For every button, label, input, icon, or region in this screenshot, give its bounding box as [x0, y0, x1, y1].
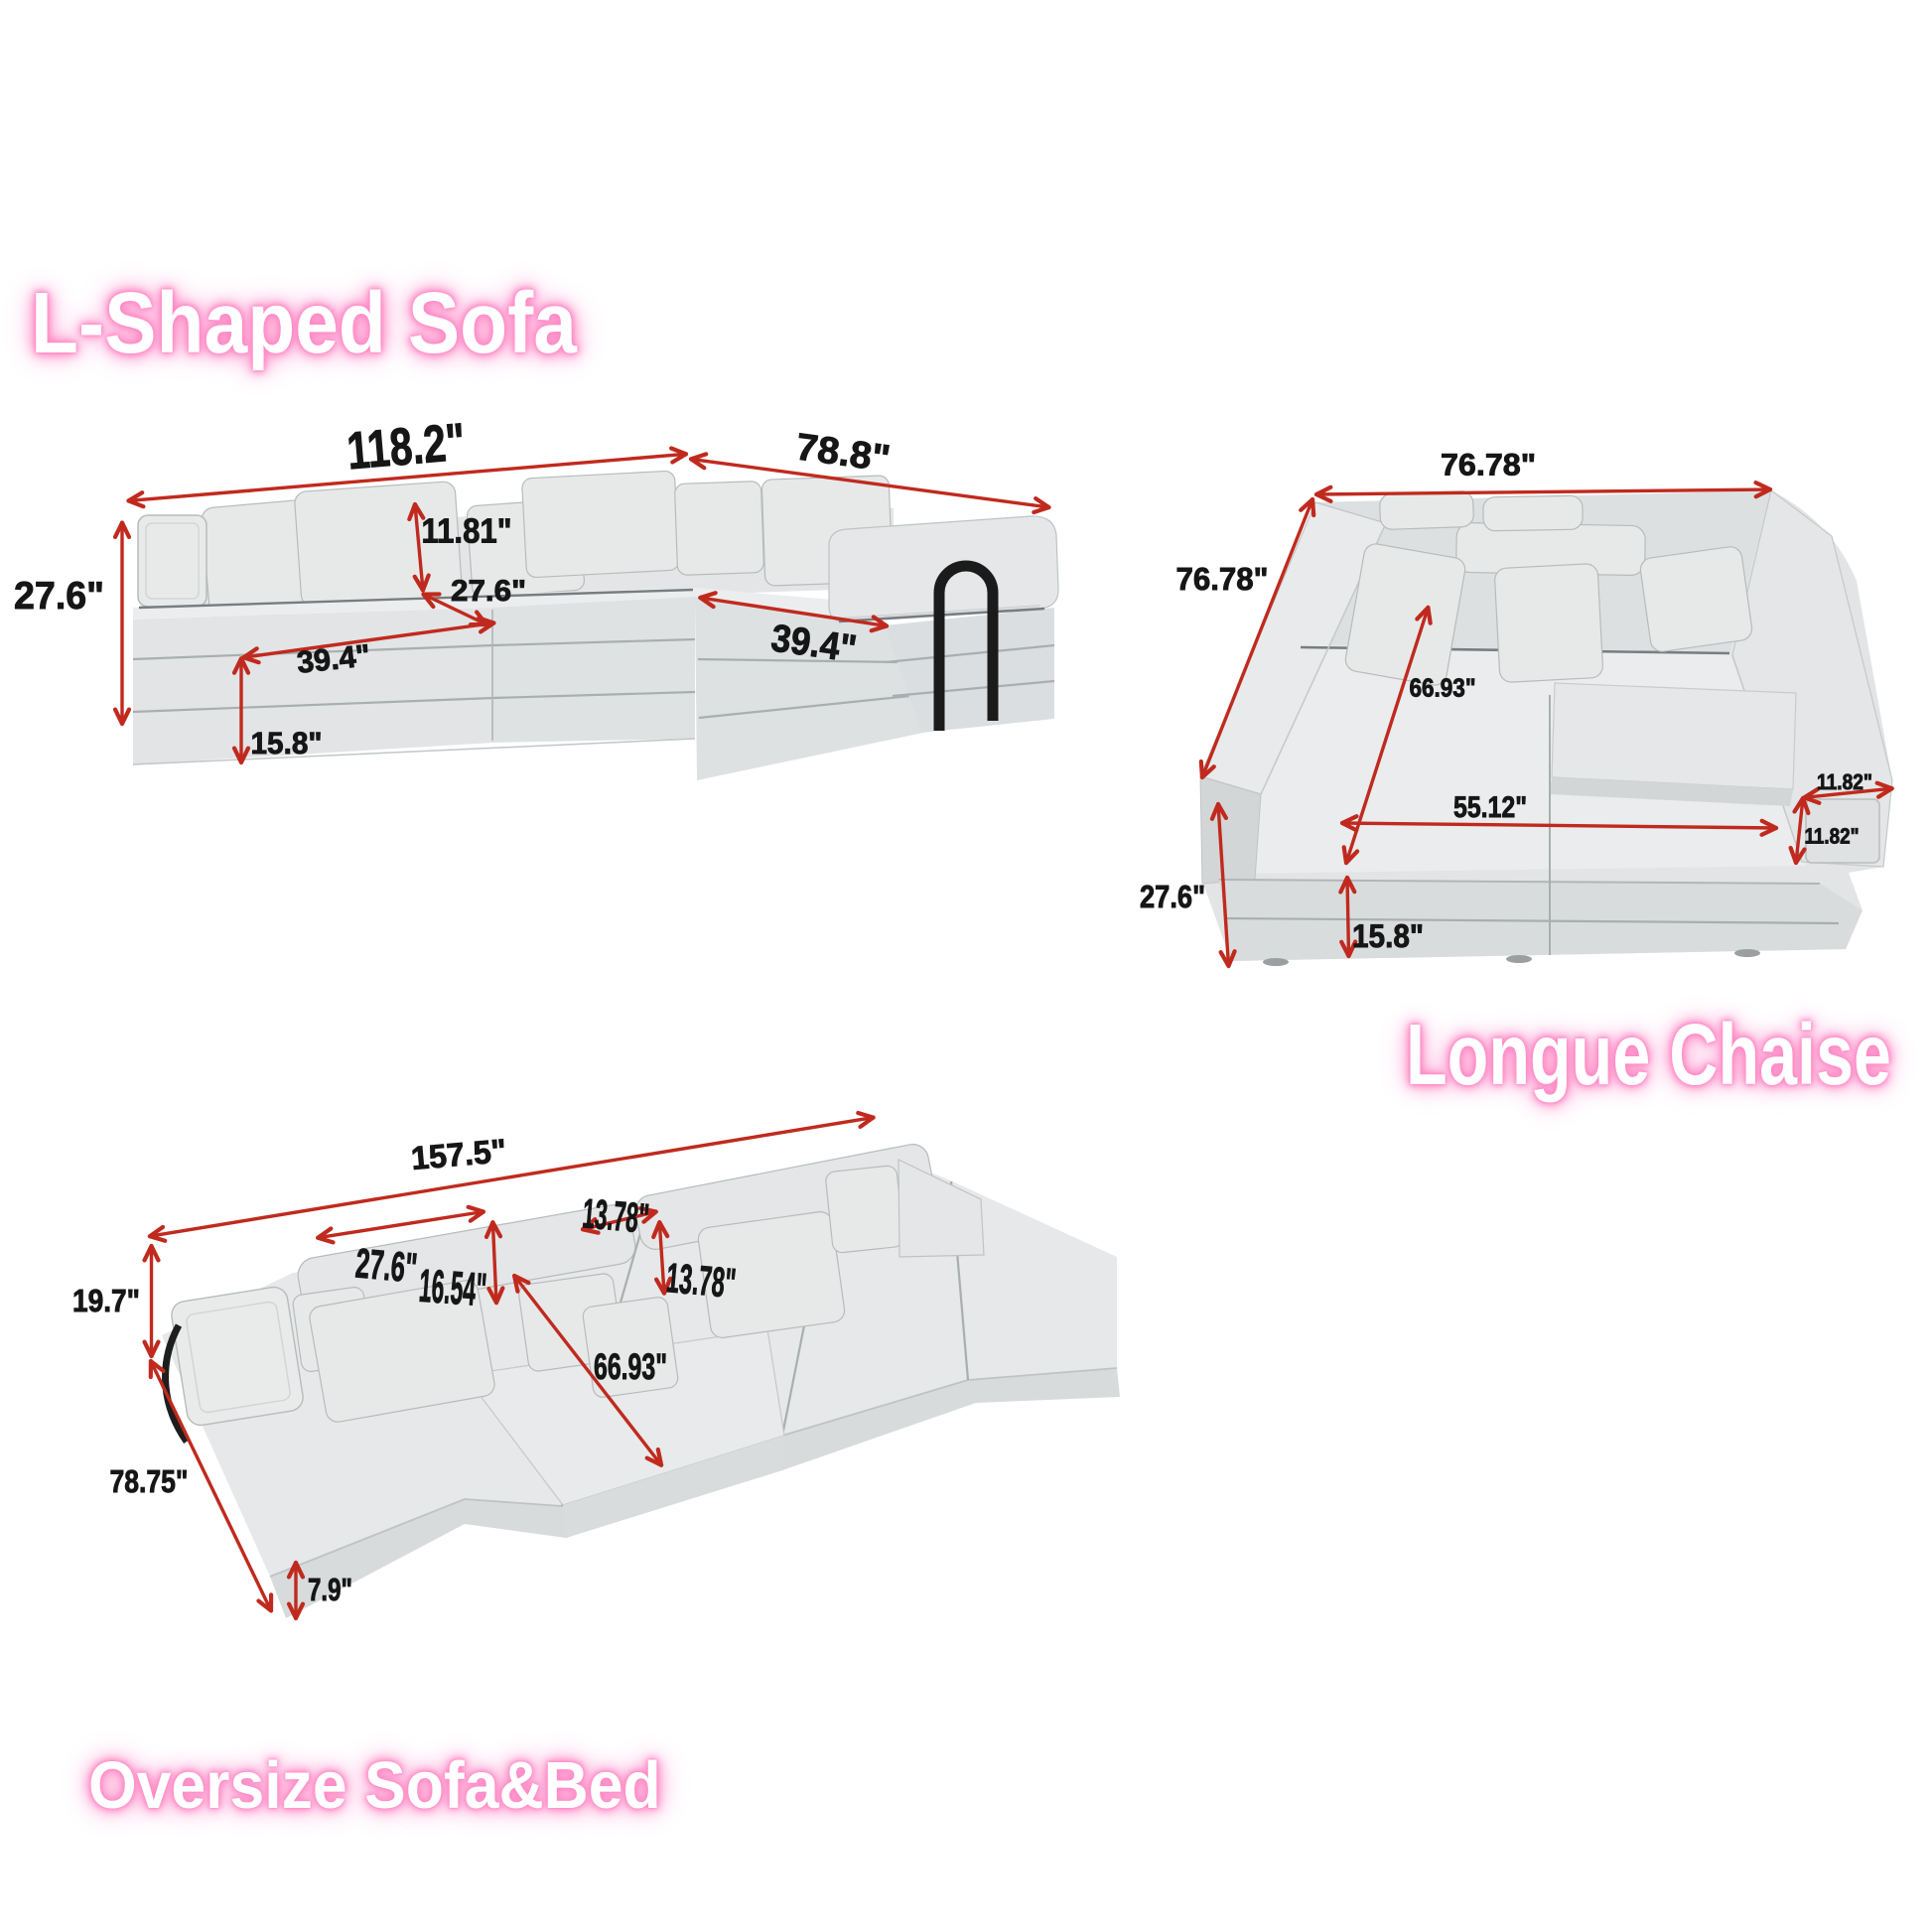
svg-text:76.78": 76.78"	[1176, 561, 1269, 597]
svg-text:78.8": 78.8"	[793, 426, 893, 480]
svg-text:66.93": 66.93"	[1410, 673, 1476, 703]
svg-text:76.78": 76.78"	[1441, 448, 1536, 483]
svg-text:27.6": 27.6"	[1140, 879, 1205, 914]
svg-text:7.9": 7.9"	[308, 1572, 352, 1607]
svg-text:16.54": 16.54"	[417, 1259, 488, 1316]
svg-text:11.81": 11.81"	[422, 511, 512, 550]
svg-text:157.5": 157.5"	[410, 1132, 508, 1176]
svg-text:118.2": 118.2"	[345, 413, 468, 482]
svg-text:27.6": 27.6"	[451, 575, 526, 608]
svg-text:55.12": 55.12"	[1453, 791, 1527, 824]
svg-text:15.8": 15.8"	[251, 726, 323, 760]
svg-text:13.78": 13.78"	[581, 1189, 651, 1242]
svg-text:78.75": 78.75"	[110, 1463, 189, 1499]
svg-text:15.8": 15.8"	[1352, 917, 1424, 954]
svg-text:66.93": 66.93"	[594, 1346, 667, 1387]
svg-text:27.6": 27.6"	[353, 1239, 419, 1291]
svg-text:19.7": 19.7"	[72, 1283, 140, 1318]
svg-text:11.82": 11.82"	[1817, 769, 1872, 794]
svg-text:13.78": 13.78"	[664, 1254, 738, 1307]
svg-text:11.82": 11.82"	[1805, 824, 1860, 849]
svg-text:27.6": 27.6"	[14, 575, 104, 618]
